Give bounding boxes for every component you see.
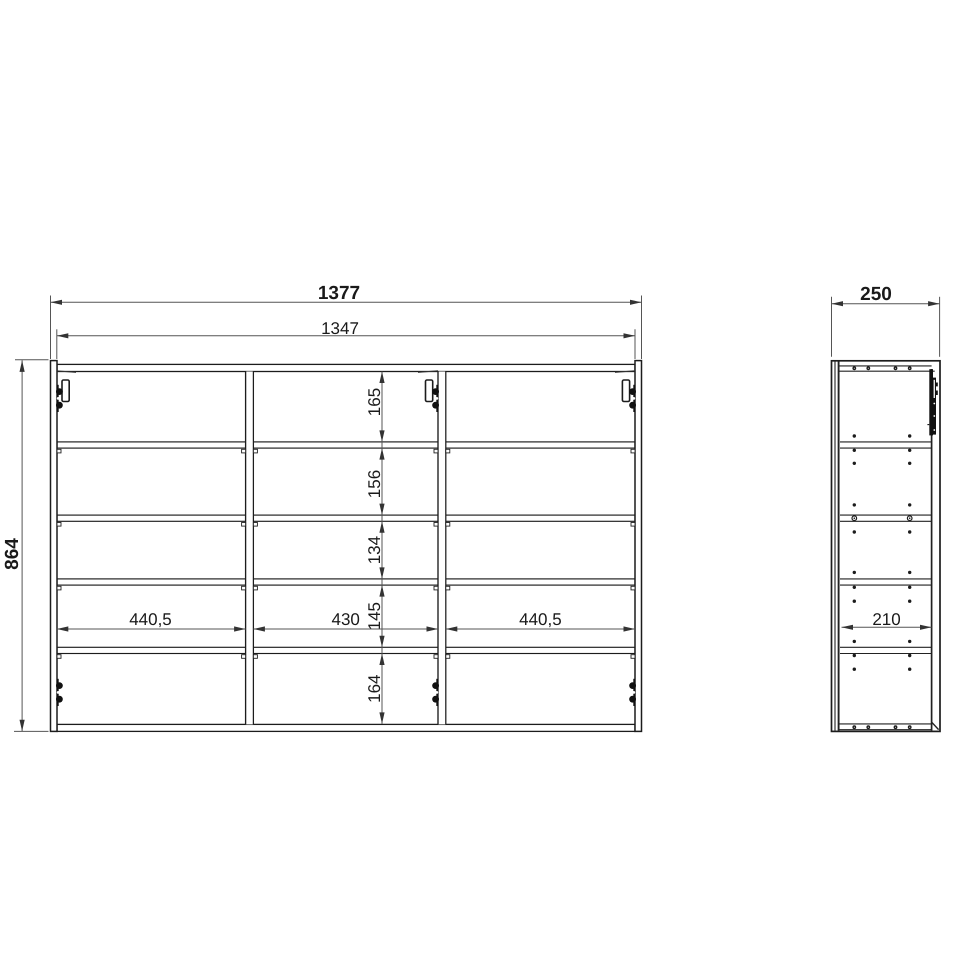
svg-text:440,5: 440,5 — [129, 610, 172, 629]
svg-text:156: 156 — [365, 470, 384, 498]
svg-text:250: 250 — [860, 284, 892, 305]
svg-text:1377: 1377 — [318, 283, 360, 304]
svg-text:134: 134 — [365, 536, 384, 564]
svg-text:1347: 1347 — [321, 319, 359, 338]
svg-text:165: 165 — [365, 388, 384, 416]
svg-text:864: 864 — [2, 538, 23, 570]
svg-text:164: 164 — [365, 675, 384, 703]
svg-text:145: 145 — [365, 602, 384, 630]
svg-text:440,5: 440,5 — [519, 610, 562, 629]
svg-text:430: 430 — [332, 610, 360, 629]
svg-text:210: 210 — [872, 610, 900, 629]
